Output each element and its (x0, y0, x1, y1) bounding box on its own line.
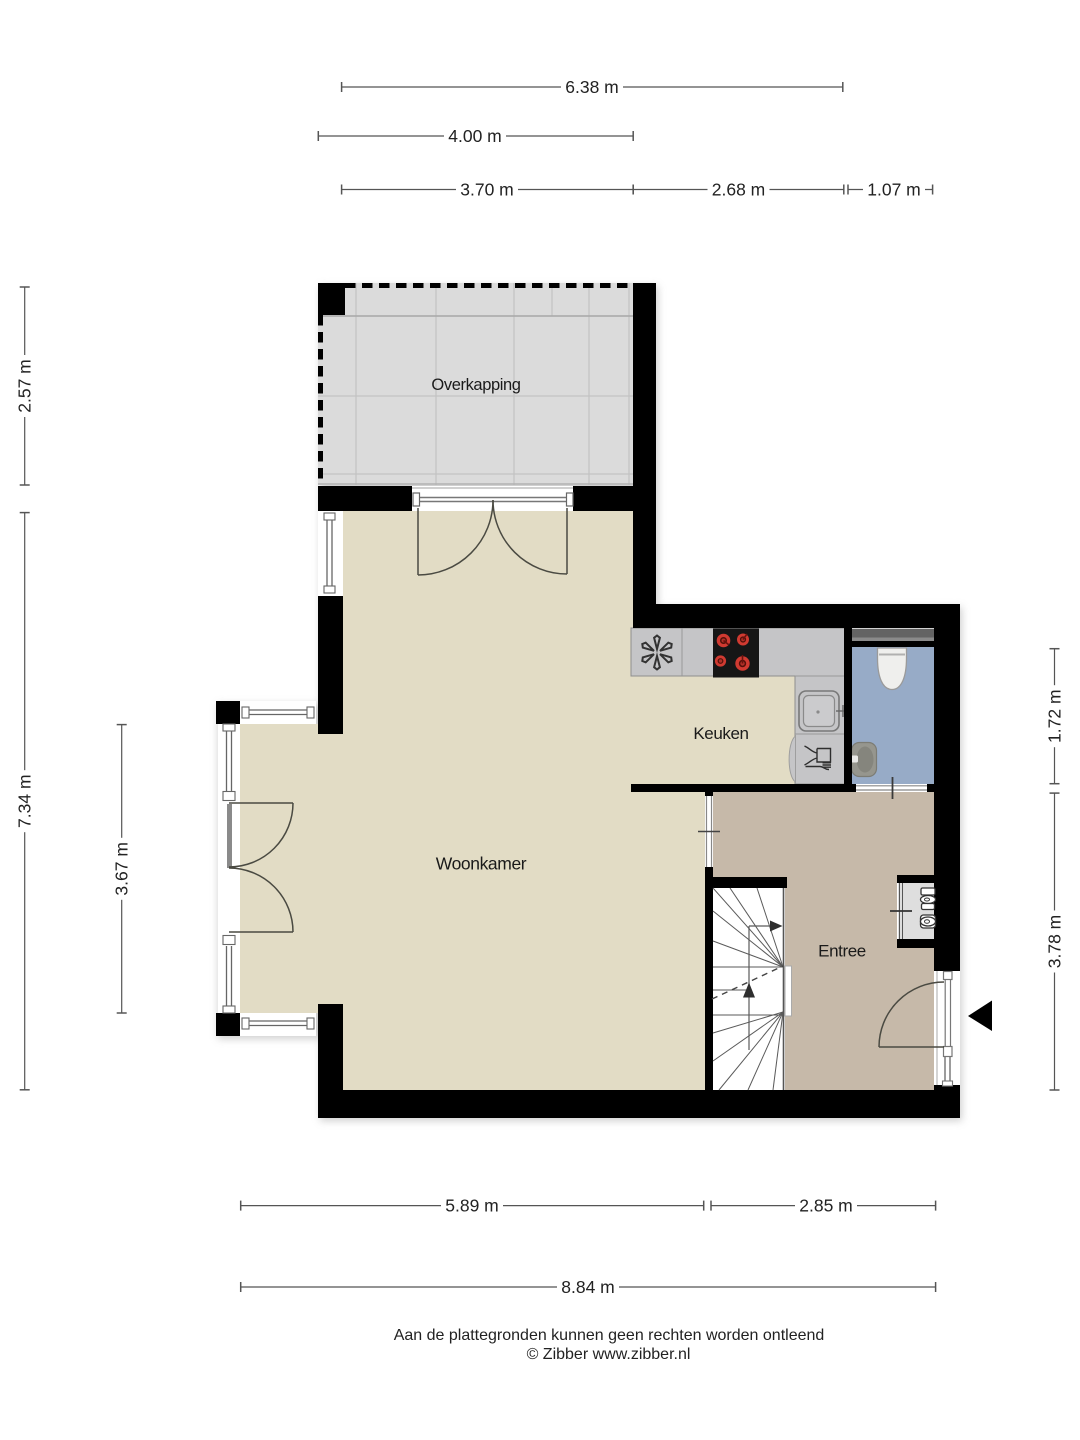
svg-text:2.68 m: 2.68 m (712, 180, 766, 200)
svg-text:Overkapping: Overkapping (431, 376, 520, 394)
svg-text:2.57 m: 2.57 m (15, 359, 35, 413)
svg-text:Woonkamer: Woonkamer (436, 854, 527, 874)
svg-text:3.78 m: 3.78 m (1045, 915, 1065, 969)
svg-text:8.84 m: 8.84 m (561, 1277, 615, 1297)
svg-text:1.72 m: 1.72 m (1045, 689, 1065, 743)
svg-text:2.85 m: 2.85 m (799, 1196, 853, 1216)
svg-text:4.00 m: 4.00 m (448, 126, 502, 146)
svg-text:3.70 m: 3.70 m (460, 180, 514, 200)
svg-text:1.07 m: 1.07 m (867, 180, 921, 200)
svg-text:© Zibber www.zibber.nl: © Zibber www.zibber.nl (527, 1346, 691, 1363)
svg-text:5.89 m: 5.89 m (445, 1196, 499, 1216)
svg-text:Aan de plattegronden kunnen ge: Aan de plattegronden kunnen geen rechten… (394, 1327, 825, 1344)
svg-text:7.34 m: 7.34 m (15, 774, 35, 828)
svg-text:Keuken: Keuken (693, 724, 748, 743)
svg-text:Entree: Entree (818, 942, 866, 961)
svg-text:3.67 m: 3.67 m (112, 842, 132, 896)
svg-text:6.38 m: 6.38 m (565, 77, 619, 97)
